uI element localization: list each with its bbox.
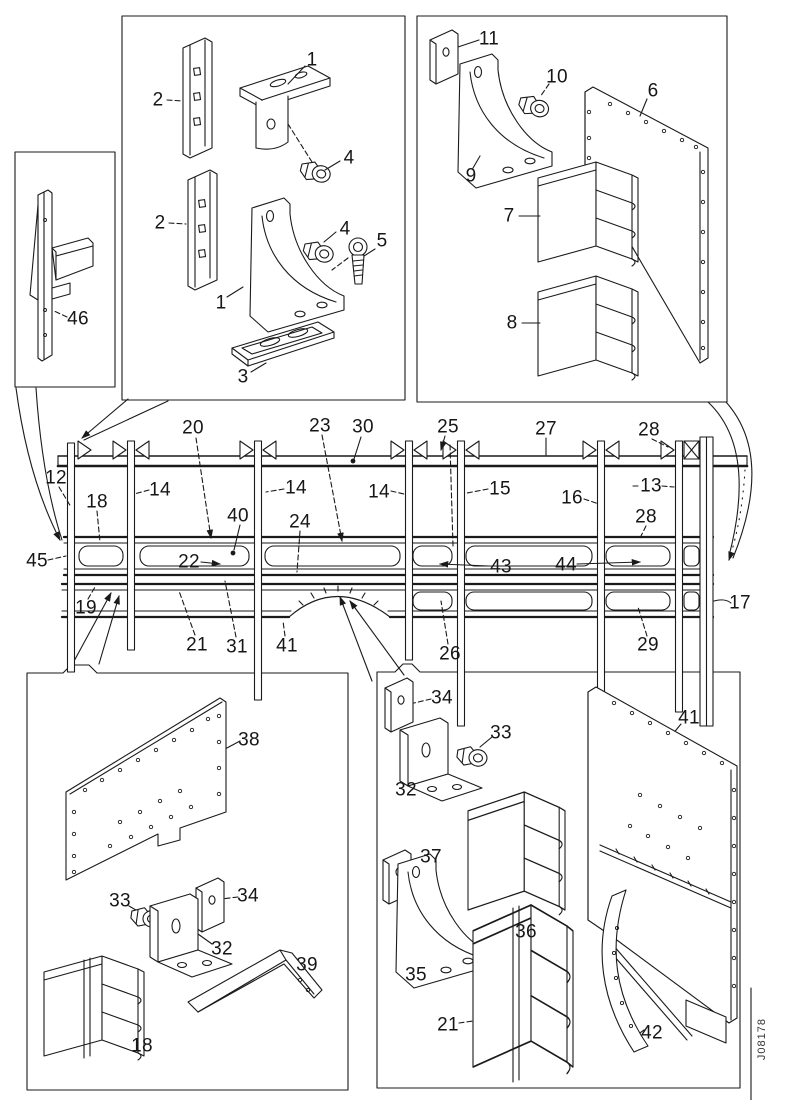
part-10-plug xyxy=(517,93,551,120)
callout-32: 32 xyxy=(211,940,233,959)
callout-43: 43 xyxy=(490,558,512,577)
weld-point-40 xyxy=(231,551,236,556)
callout-8: 8 xyxy=(507,314,518,333)
callout-41: 41 xyxy=(678,709,700,728)
callout-42: 42 xyxy=(641,1024,663,1043)
callout-45: 45 xyxy=(26,552,48,571)
diagram-line-art xyxy=(0,0,788,1100)
detail-left-part-46 xyxy=(30,190,93,361)
callout-33: 33 xyxy=(490,724,512,743)
part-34-plate xyxy=(385,678,413,732)
callout-27: 27 xyxy=(535,420,557,439)
callout-18: 18 xyxy=(131,1037,153,1056)
part-3-base-plate xyxy=(232,322,334,366)
callout-3: 3 xyxy=(238,368,249,387)
callout-37: 37 xyxy=(420,848,442,867)
callout-39: 39 xyxy=(296,956,318,975)
callout-34: 34 xyxy=(237,887,259,906)
pointer-bottom-right-box xyxy=(340,597,404,681)
part-4-plug-lower xyxy=(302,239,336,265)
callout-14: 14 xyxy=(285,479,307,498)
callout-15: 15 xyxy=(489,480,511,499)
callout-9: 9 xyxy=(466,167,477,186)
exploded-parts-diagram-page: 1 2 4 2 4 5 1 3 11 10 6 9 7 8 46 20 23 3… xyxy=(0,0,788,1100)
part-2-rail-lower xyxy=(188,170,217,290)
callout-17: 17 xyxy=(729,594,751,613)
callout-30: 30 xyxy=(352,418,374,437)
callout-19: 19 xyxy=(75,599,97,618)
callout-20: 20 xyxy=(182,419,204,438)
callout-35: 35 xyxy=(405,966,427,985)
part-5-screw xyxy=(332,238,367,284)
crossmember-pockets-lower xyxy=(413,592,699,610)
detail-bottom-left-parts xyxy=(44,698,322,1060)
callout-40: 40 xyxy=(227,507,249,526)
callout-13: 13 xyxy=(640,477,662,496)
weld-point-30 xyxy=(351,459,356,464)
callout-21: 21 xyxy=(186,636,208,655)
callout-1: 1 xyxy=(216,294,227,313)
callout-18: 18 xyxy=(86,493,108,512)
callout-16: 16 xyxy=(561,489,583,508)
callout-11: 11 xyxy=(479,30,499,49)
callout-10: 10 xyxy=(546,68,568,87)
callout-4: 4 xyxy=(344,149,355,168)
callout-21: 21 xyxy=(437,1016,459,1035)
callout-22: 22 xyxy=(178,553,200,572)
part-1-bracket-upper xyxy=(240,66,330,162)
part-34-plate xyxy=(196,878,224,932)
callout-14: 14 xyxy=(149,481,171,500)
callout-46: 46 xyxy=(67,310,89,329)
callout-26: 26 xyxy=(439,645,461,664)
callout-32: 32 xyxy=(395,781,417,800)
callout-5: 5 xyxy=(377,232,388,251)
detail-bottom-right-parts xyxy=(383,678,737,1082)
detail-top-left-parts xyxy=(183,38,367,366)
callout-24: 24 xyxy=(289,513,311,532)
callout-28: 28 xyxy=(635,508,657,527)
callout-31: 31 xyxy=(226,638,248,657)
wheel-arch-cutout xyxy=(289,586,390,617)
callout-4: 4 xyxy=(340,220,351,239)
channel-block-mid xyxy=(468,792,565,915)
drawing-number: J08178 xyxy=(756,1018,768,1060)
callout-2: 2 xyxy=(153,91,164,110)
callout-29: 29 xyxy=(637,636,659,655)
part-33-plug xyxy=(456,745,488,768)
part-18-channel-block xyxy=(44,956,144,1060)
callout-12: 12 xyxy=(45,469,67,488)
callout-36: 36 xyxy=(515,923,537,942)
part-2-rail-upper xyxy=(183,38,212,158)
pointer-top-right-box xyxy=(708,402,752,560)
callout-28: 28 xyxy=(638,421,660,440)
part-4-plug-upper xyxy=(299,159,333,185)
callout-41: 41 xyxy=(276,637,298,656)
part-8-channel-block xyxy=(538,276,638,380)
detail-top-right-parts xyxy=(430,30,708,380)
callout-44: 44 xyxy=(555,556,577,575)
part-1-bracket-lower xyxy=(250,198,344,332)
callout-2: 2 xyxy=(155,214,166,233)
part-7-channel-block xyxy=(538,162,638,266)
callout-34: 34 xyxy=(431,689,453,708)
pointer-left-box xyxy=(16,388,62,540)
callout-25: 25 xyxy=(437,418,459,437)
callout-33: 33 xyxy=(109,892,131,911)
callout-6: 6 xyxy=(648,82,659,101)
callout-38: 38 xyxy=(238,731,260,750)
part-11-plate xyxy=(430,30,458,84)
callout-7: 7 xyxy=(504,207,515,226)
pointer-top-left-box xyxy=(82,399,168,440)
callout-14: 14 xyxy=(368,483,390,502)
callout-1: 1 xyxy=(307,51,318,70)
part-38-front-panel xyxy=(66,698,226,880)
callout-23: 23 xyxy=(309,417,331,436)
